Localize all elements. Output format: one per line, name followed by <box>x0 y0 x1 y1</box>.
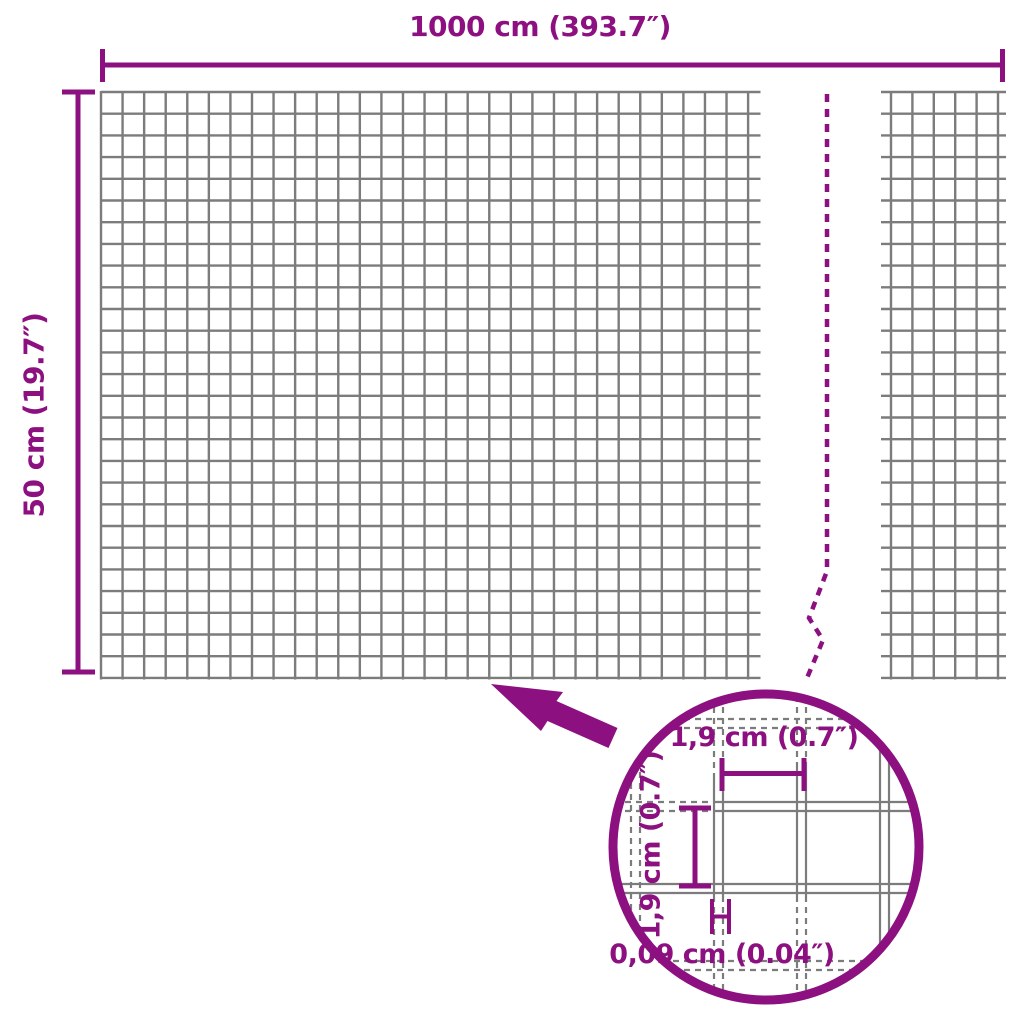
mesh-grid-right <box>881 91 1006 680</box>
wire-thickness-label: 0,09 cm (0.04″) <box>609 939 834 970</box>
width-dimension: 1000 cm (393.7″) <box>103 10 1003 82</box>
mesh-opening-height-marker <box>679 808 711 886</box>
detail-zoom: 1,9 cm (0.7″) 1,9 cm (0.7″) 0,09 cm (0.0… <box>609 694 920 1000</box>
diagram-canvas: 1000 cm (393.7″) 50 cm (19.7″) <box>0 0 1024 1024</box>
mesh-opening-height-label: 1,9 cm (0.7″) <box>636 751 667 940</box>
break-line <box>807 94 827 678</box>
mesh-opening-width-label: 1,9 cm (0.7″) <box>670 722 859 753</box>
height-dimension: 50 cm (19.7″) <box>18 92 96 672</box>
zoom-arrow <box>491 684 618 748</box>
wire-thickness-marker <box>712 899 729 934</box>
wire-mesh-dimension-diagram: 1000 cm (393.7″) 50 cm (19.7″) <box>0 0 1024 1024</box>
width-dimension-label: 1000 cm (393.7″) <box>409 10 671 43</box>
mesh-opening-width-marker <box>722 758 804 791</box>
height-dimension-label: 50 cm (19.7″) <box>18 313 51 518</box>
mesh-grid-main <box>101 91 761 680</box>
